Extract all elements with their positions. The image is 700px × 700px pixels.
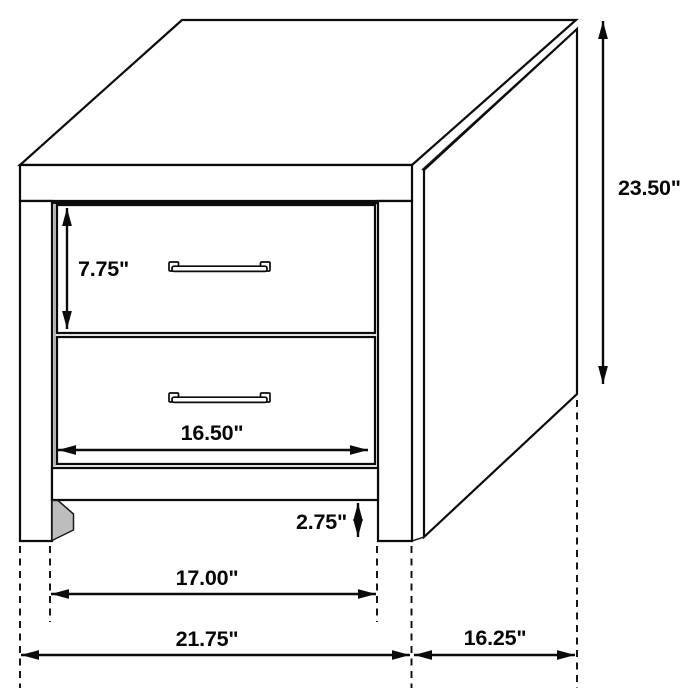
nightstand-dimension-diagram: 23.50" 7.75" 16.50" 2.75" 17.00" 21.75" … — [0, 0, 700, 700]
dim-overall-height: 23.50" — [603, 21, 681, 384]
dim-drawer-height-label: 7.75" — [78, 257, 129, 281]
corner-bottom-edge — [412, 537, 424, 541]
dim-overall-depth: 16.25" — [414, 626, 575, 655]
handle-bar — [172, 397, 267, 402]
bottom-rail — [52, 468, 378, 500]
top-rail-front — [20, 165, 412, 201]
dim-leg-span: 17.00" — [51, 566, 376, 594]
dim-leg-clearance: 2.75" — [296, 503, 358, 537]
left-leg-bevel — [52, 501, 74, 541]
handle-bar — [172, 266, 267, 271]
dim-drawer-width-label: 16.50" — [181, 421, 244, 445]
right-stile-leg — [378, 201, 412, 541]
dim-overall-depth-label: 16.25" — [464, 626, 527, 650]
dim-overall-width: 21.75" — [21, 627, 410, 655]
diagram-canvas: 23.50" 7.75" 16.50" 2.75" 17.00" 21.75" … — [0, 0, 700, 700]
dim-leg-span-label: 17.00" — [176, 566, 239, 590]
dim-leg-clearance-label: 2.75" — [296, 510, 347, 534]
dim-overall-width-label: 21.75" — [176, 627, 239, 651]
dim-overall-height-label: 23.50" — [618, 176, 681, 200]
left-stile-leg — [20, 201, 52, 541]
